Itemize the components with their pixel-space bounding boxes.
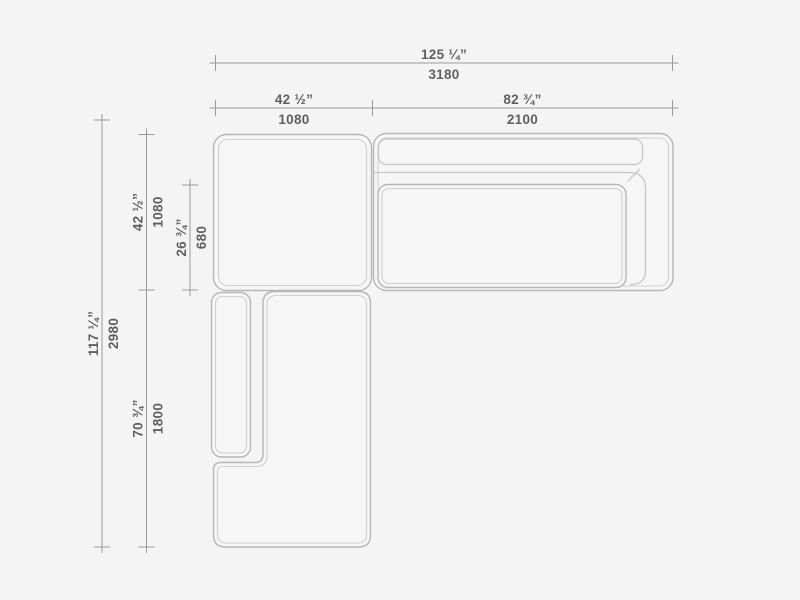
dim-seat-depth: 26 ¾” 680 (174, 179, 209, 296)
dim-top-section-depth-inches-label: 42 ½” (131, 193, 146, 231)
dim-overall-width-mm-label: 3180 (428, 67, 459, 82)
dim-section-widths: 42 ½” 1080 82 ¾” 2100 (210, 92, 679, 127)
dimension-annotations: 125 ¼” 3180 42 ½” 1080 82 ¾” 2100 117 ¼”… (86, 47, 679, 553)
dim-chaise-length: 70 ¾” 1800 (131, 284, 166, 553)
dim-overall-width: 125 ¼” 3180 (210, 47, 679, 82)
dim-overall-depth-mm-label: 2980 (106, 318, 121, 349)
dim-left-section-width-mm-label: 1080 (278, 112, 309, 127)
dim-overall-width-inches-label: 125 ¼” (421, 47, 467, 62)
sofa-dimension-drawing: 125 ¼” 3180 42 ½” 1080 82 ¾” 2100 117 ¼”… (0, 0, 800, 600)
technical-drawing-canvas: 125 ¼” 3180 42 ½” 1080 82 ¾” 2100 117 ¼”… (0, 0, 800, 600)
dim-seat-depth-mm-label: 680 (194, 226, 209, 249)
sofa-plan (212, 134, 674, 548)
right-sofa-seat-cushion (378, 185, 626, 288)
module-chaise (212, 292, 371, 548)
dim-overall-depth: 117 ¼” 2980 (86, 114, 121, 553)
dim-chaise-length-mm-label: 1800 (151, 403, 166, 434)
dim-top-section-depth: 42 ½” 1080 (131, 129, 166, 297)
dim-top-section-depth-mm-label: 1080 (151, 196, 166, 227)
module-corner-seat (214, 135, 372, 291)
module-right-sofa (374, 134, 674, 291)
dim-seat-depth-inches-label: 26 ¾” (174, 218, 189, 256)
dim-chaise-length-inches-label: 70 ¾” (131, 399, 146, 437)
dim-right-section-width-mm-label: 2100 (507, 112, 538, 127)
chaise-armrest (212, 293, 251, 458)
corner-seat-outline (214, 135, 372, 291)
dim-right-section-width-inches-label: 82 ¾” (503, 92, 541, 107)
dim-overall-depth-inches-label: 117 ¼” (86, 311, 101, 356)
dim-left-section-width-inches-label: 42 ½” (275, 92, 313, 107)
